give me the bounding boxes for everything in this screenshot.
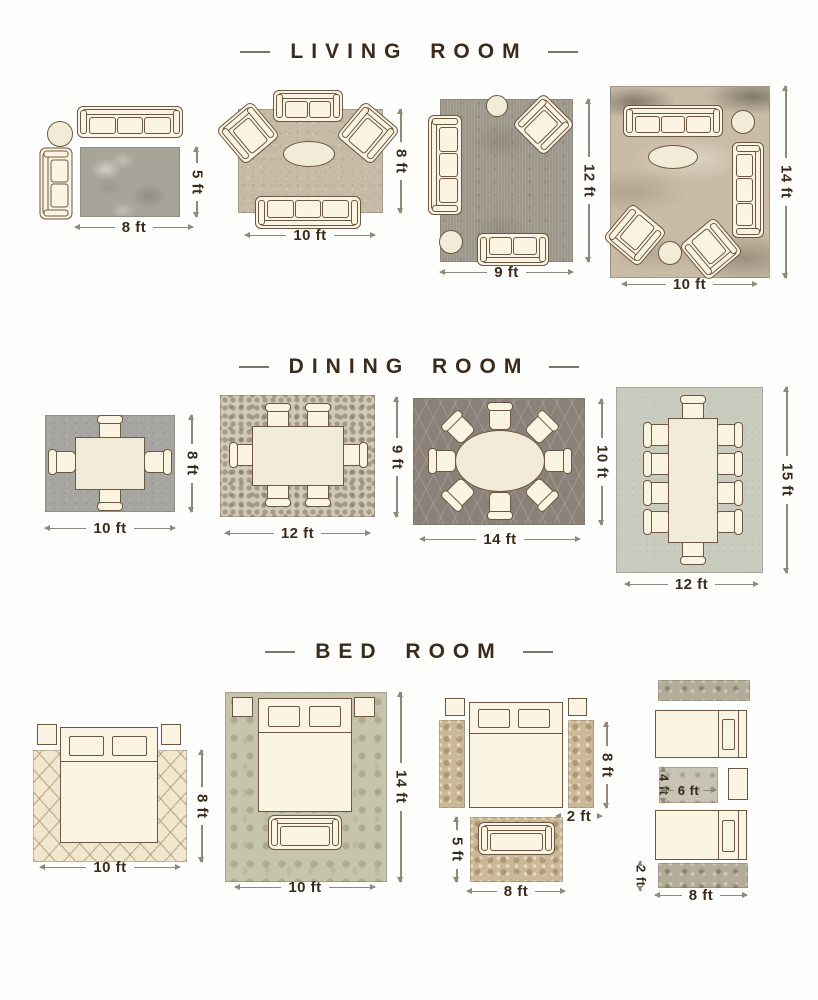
section-title-text: DINING ROOM: [289, 355, 530, 379]
bed-room-title: BED ROOM: [0, 640, 818, 664]
round-side-table: [486, 95, 508, 117]
dimension-height: 8 ft: [193, 750, 211, 862]
round-side-table: [439, 230, 463, 254]
dimension-height: 14 ft: [777, 86, 795, 278]
dimension-runner-width: 8 ft: [655, 888, 747, 903]
dimension-rug-width: 6 ft: [661, 784, 716, 797]
dimension-height: 5 ft: [188, 147, 206, 217]
title-dash: [239, 366, 269, 369]
bed: [469, 702, 563, 808]
dimension-width: 10 ft: [40, 860, 180, 875]
dining-chair: [489, 406, 511, 430]
dimension-height: 14 ft: [392, 692, 410, 882]
nightstand: [232, 697, 253, 717]
dimension-height: 15 ft: [778, 387, 796, 573]
sofa: [732, 142, 764, 238]
loveseat: [477, 233, 549, 266]
dimension-width: 10 ft: [235, 880, 375, 895]
twin-bed: [655, 710, 747, 758]
dimension-width: 10 ft: [45, 521, 175, 536]
loveseat: [273, 90, 343, 122]
bed: [258, 698, 352, 812]
dimension-width: 9 ft: [440, 265, 573, 280]
nightstand: [568, 698, 587, 716]
title-dash: [548, 51, 578, 54]
dining-table: [252, 426, 344, 486]
living-room-title: LIVING ROOM: [0, 40, 818, 64]
title-dash: [549, 366, 579, 369]
dimension-width: 14 ft: [420, 532, 580, 547]
sofa: [428, 115, 462, 215]
nightstand: [354, 697, 375, 717]
dimension-runner-height: 2 ft: [632, 861, 650, 891]
dining-chair: [715, 511, 739, 533]
dimension-foot-rug-width: 8 ft: [467, 884, 565, 899]
dimension-runner-length: 8 ft: [598, 722, 616, 808]
bench: [268, 815, 342, 850]
sofa: [255, 196, 361, 229]
oval-coffee-table: [648, 145, 698, 169]
dining-chair: [715, 453, 739, 475]
dining-chair: [432, 450, 456, 472]
round-side-table: [47, 121, 73, 147]
title-dash: [265, 651, 295, 654]
dining-chair: [715, 424, 739, 446]
runner-rug: [439, 720, 465, 808]
round-side-table: [731, 110, 755, 134]
dining-table: [668, 418, 718, 543]
dining-chair: [715, 482, 739, 504]
bench: [478, 822, 555, 855]
dimension-width: 10 ft: [245, 228, 375, 243]
dining-table: [75, 437, 145, 490]
twin-bed: [655, 810, 747, 860]
dimension-width: 12 ft: [625, 577, 758, 592]
dining-chair: [52, 451, 76, 473]
bed: [60, 727, 158, 843]
dimension-height: 8 ft: [183, 415, 201, 512]
sofa: [623, 105, 723, 137]
nightstand: [445, 698, 465, 716]
dining-chair: [144, 451, 168, 473]
nightstand: [728, 768, 748, 800]
loveseat: [40, 148, 73, 220]
section-title-text: BED ROOM: [315, 640, 503, 664]
rug: [80, 147, 180, 217]
dimension-width: 10 ft: [622, 277, 757, 292]
rug-size-guide: LIVING ROOM DINING ROOM BED ROOM 8 ft 5 …: [0, 0, 818, 1000]
dining-chair: [544, 450, 568, 472]
dining-room-title: DINING ROOM: [0, 355, 818, 379]
runner-rug: [658, 680, 750, 701]
sofa: [77, 106, 183, 138]
section-title-text: LIVING ROOM: [290, 40, 527, 64]
dimension-height: 12 ft: [580, 99, 598, 262]
title-dash: [240, 51, 270, 54]
oval-coffee-table: [283, 141, 335, 167]
dimension-foot-rug-height: 5 ft: [448, 817, 466, 882]
dimension-width: 8 ft: [75, 220, 193, 235]
oval-dining-table: [455, 430, 545, 492]
nightstand: [161, 724, 181, 745]
dimension-height: 8 ft: [392, 109, 410, 213]
dimension-height: 9 ft: [388, 397, 406, 517]
runner-rug: [658, 863, 748, 888]
runner-rug: [568, 720, 594, 808]
dimension-width: 12 ft: [225, 526, 370, 541]
dimension-height: 10 ft: [593, 399, 611, 525]
round-side-table: [658, 241, 682, 265]
title-dash: [523, 651, 553, 654]
nightstand: [37, 724, 57, 745]
dining-chair: [489, 492, 511, 516]
